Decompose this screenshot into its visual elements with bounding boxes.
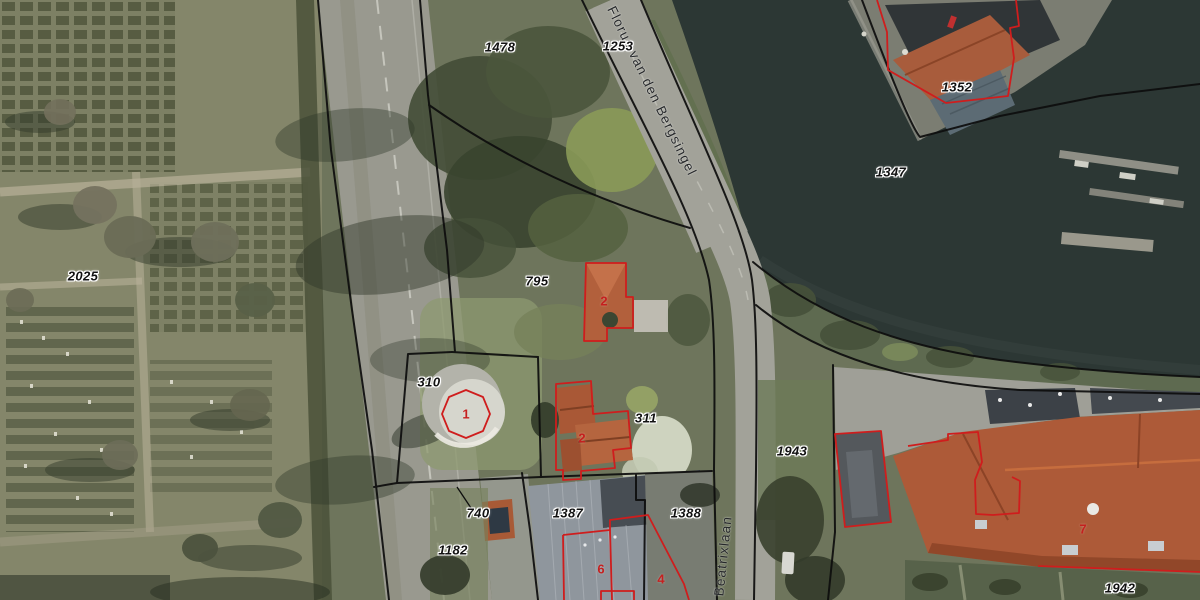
- outline-building-front: [1038, 566, 1200, 572]
- outline-flat-building: [835, 431, 891, 527]
- parcel-boundaries: [318, 0, 1200, 600]
- outline-building-6-4: [563, 515, 689, 600]
- outline-house-311: [556, 381, 631, 480]
- building-outlines: [442, 0, 1200, 600]
- map-canvas[interactable]: Florus van den Bergsingel Beatrixlaan 14…: [0, 0, 1200, 600]
- outline-building-7: [908, 432, 1020, 515]
- label-leader-line: [457, 487, 471, 508]
- outline-building-1352: [877, 0, 1019, 103]
- outline-water-tower: [442, 390, 490, 438]
- cadastral-overlay: [0, 0, 1200, 600]
- outline-house-795: [584, 263, 633, 341]
